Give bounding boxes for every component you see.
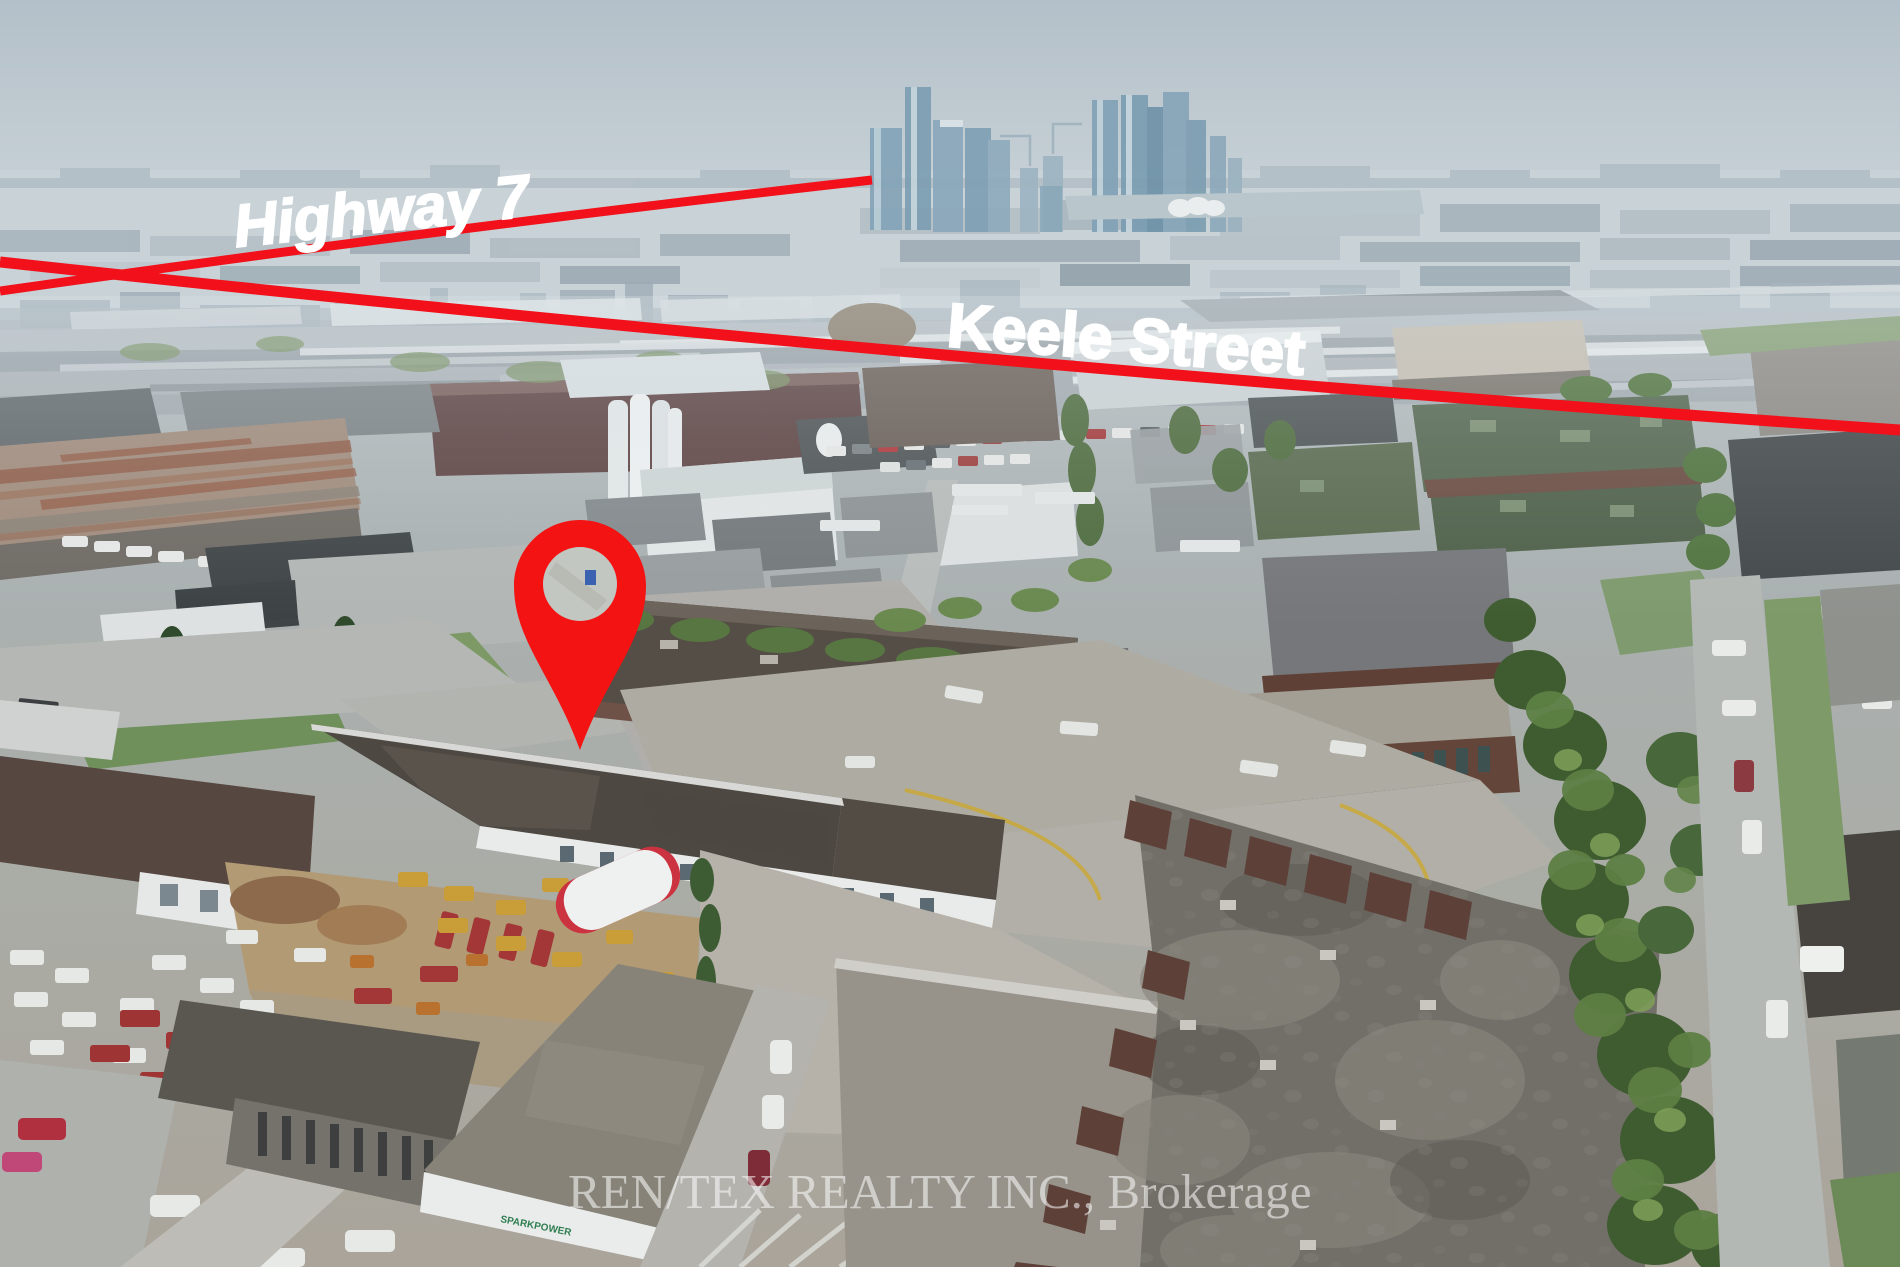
svg-text:REN/TEX REALTY INC., Brokerage: REN/TEX REALTY INC., Brokerage: [568, 1164, 1312, 1219]
